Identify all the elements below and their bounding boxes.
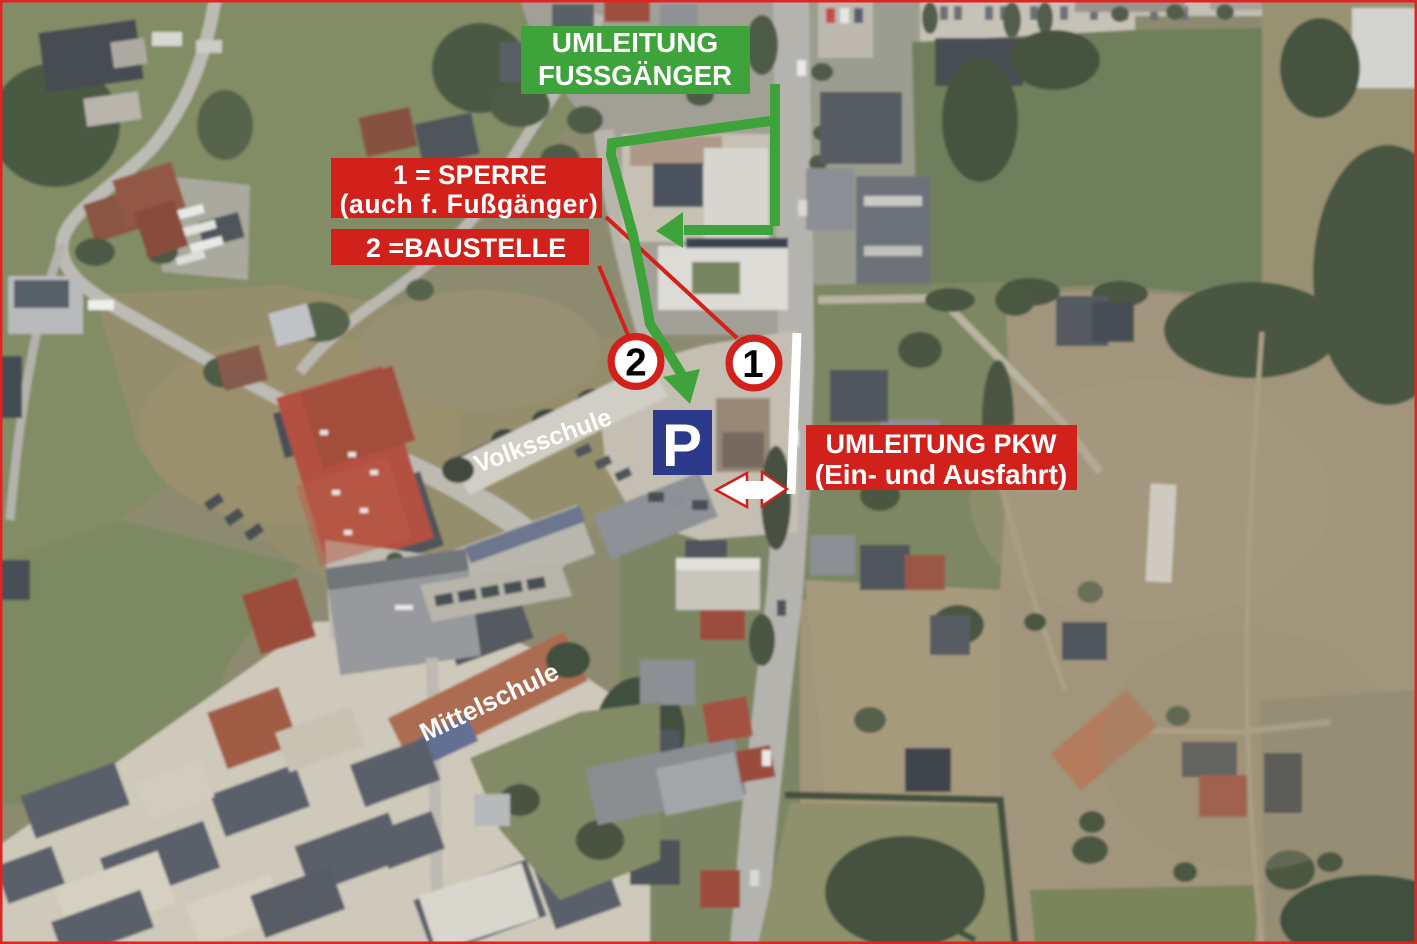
- svg-text:UMLEITUNG: UMLEITUNG: [552, 27, 718, 58]
- svg-text:UMLEITUNG PKW: UMLEITUNG PKW: [826, 429, 1057, 459]
- svg-text:FUSSGÄNGER: FUSSGÄNGER: [538, 60, 732, 91]
- svg-text:2: 2: [625, 342, 646, 385]
- svg-text:1: 1: [742, 343, 763, 386]
- svg-text:(auch f. Fußgänger): (auch f. Fußgänger): [340, 189, 599, 219]
- svg-text:(Ein- und Ausfahrt): (Ein- und Ausfahrt): [815, 459, 1067, 490]
- svg-text:P: P: [662, 412, 702, 479]
- svg-text:1 = SPERRE: 1 = SPERRE: [393, 160, 547, 190]
- svg-text:2 =BAUSTELLE: 2 =BAUSTELLE: [366, 233, 566, 263]
